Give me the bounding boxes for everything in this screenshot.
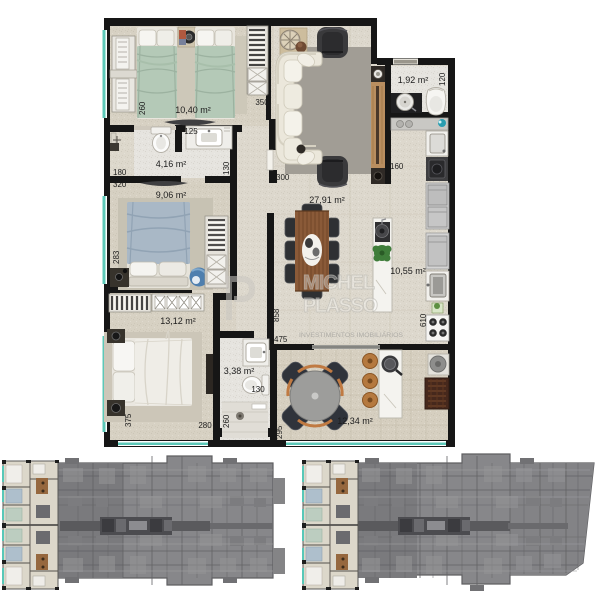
svg-text:9,06 m²: 9,06 m²: [156, 190, 187, 200]
svg-text:280: 280: [198, 421, 212, 430]
svg-text:10,55 m²: 10,55 m²: [390, 266, 426, 276]
svg-text:27,91 m²: 27,91 m²: [309, 195, 345, 205]
svg-text:350: 350: [255, 98, 269, 107]
svg-text:3,38 m²: 3,38 m²: [224, 366, 255, 376]
svg-text:300: 300: [276, 173, 290, 182]
svg-text:295: 295: [275, 425, 284, 439]
svg-text:260: 260: [138, 101, 147, 115]
svg-text:375: 375: [124, 413, 133, 427]
svg-text:INVESTIMENTOS IMOBILIÁRIOS: INVESTIMENTOS IMOBILIÁRIOS: [299, 332, 403, 339]
svg-text:12,34 m²: 12,34 m²: [337, 416, 373, 426]
svg-text:130: 130: [222, 161, 231, 175]
svg-text:MICHEL: MICHEL: [303, 272, 375, 294]
svg-text:130: 130: [251, 385, 265, 394]
svg-text:475: 475: [274, 335, 288, 344]
svg-text:10,40 m²: 10,40 m²: [175, 105, 211, 115]
svg-text:283: 283: [112, 250, 121, 264]
svg-text:4,16 m²: 4,16 m²: [156, 159, 187, 169]
svg-text:PLASSO: PLASSO: [303, 295, 378, 317]
svg-text:260: 260: [222, 414, 231, 428]
svg-text:610: 610: [419, 313, 428, 327]
svg-text:320: 320: [113, 180, 127, 189]
svg-text:120: 120: [438, 72, 447, 86]
svg-text:13,12 m²: 13,12 m²: [160, 316, 196, 326]
svg-text:125: 125: [184, 127, 198, 136]
svg-text:160: 160: [390, 162, 404, 171]
svg-text:858: 858: [272, 308, 281, 322]
svg-text:180: 180: [113, 168, 127, 177]
svg-text:1,92 m²: 1,92 m²: [398, 75, 429, 85]
